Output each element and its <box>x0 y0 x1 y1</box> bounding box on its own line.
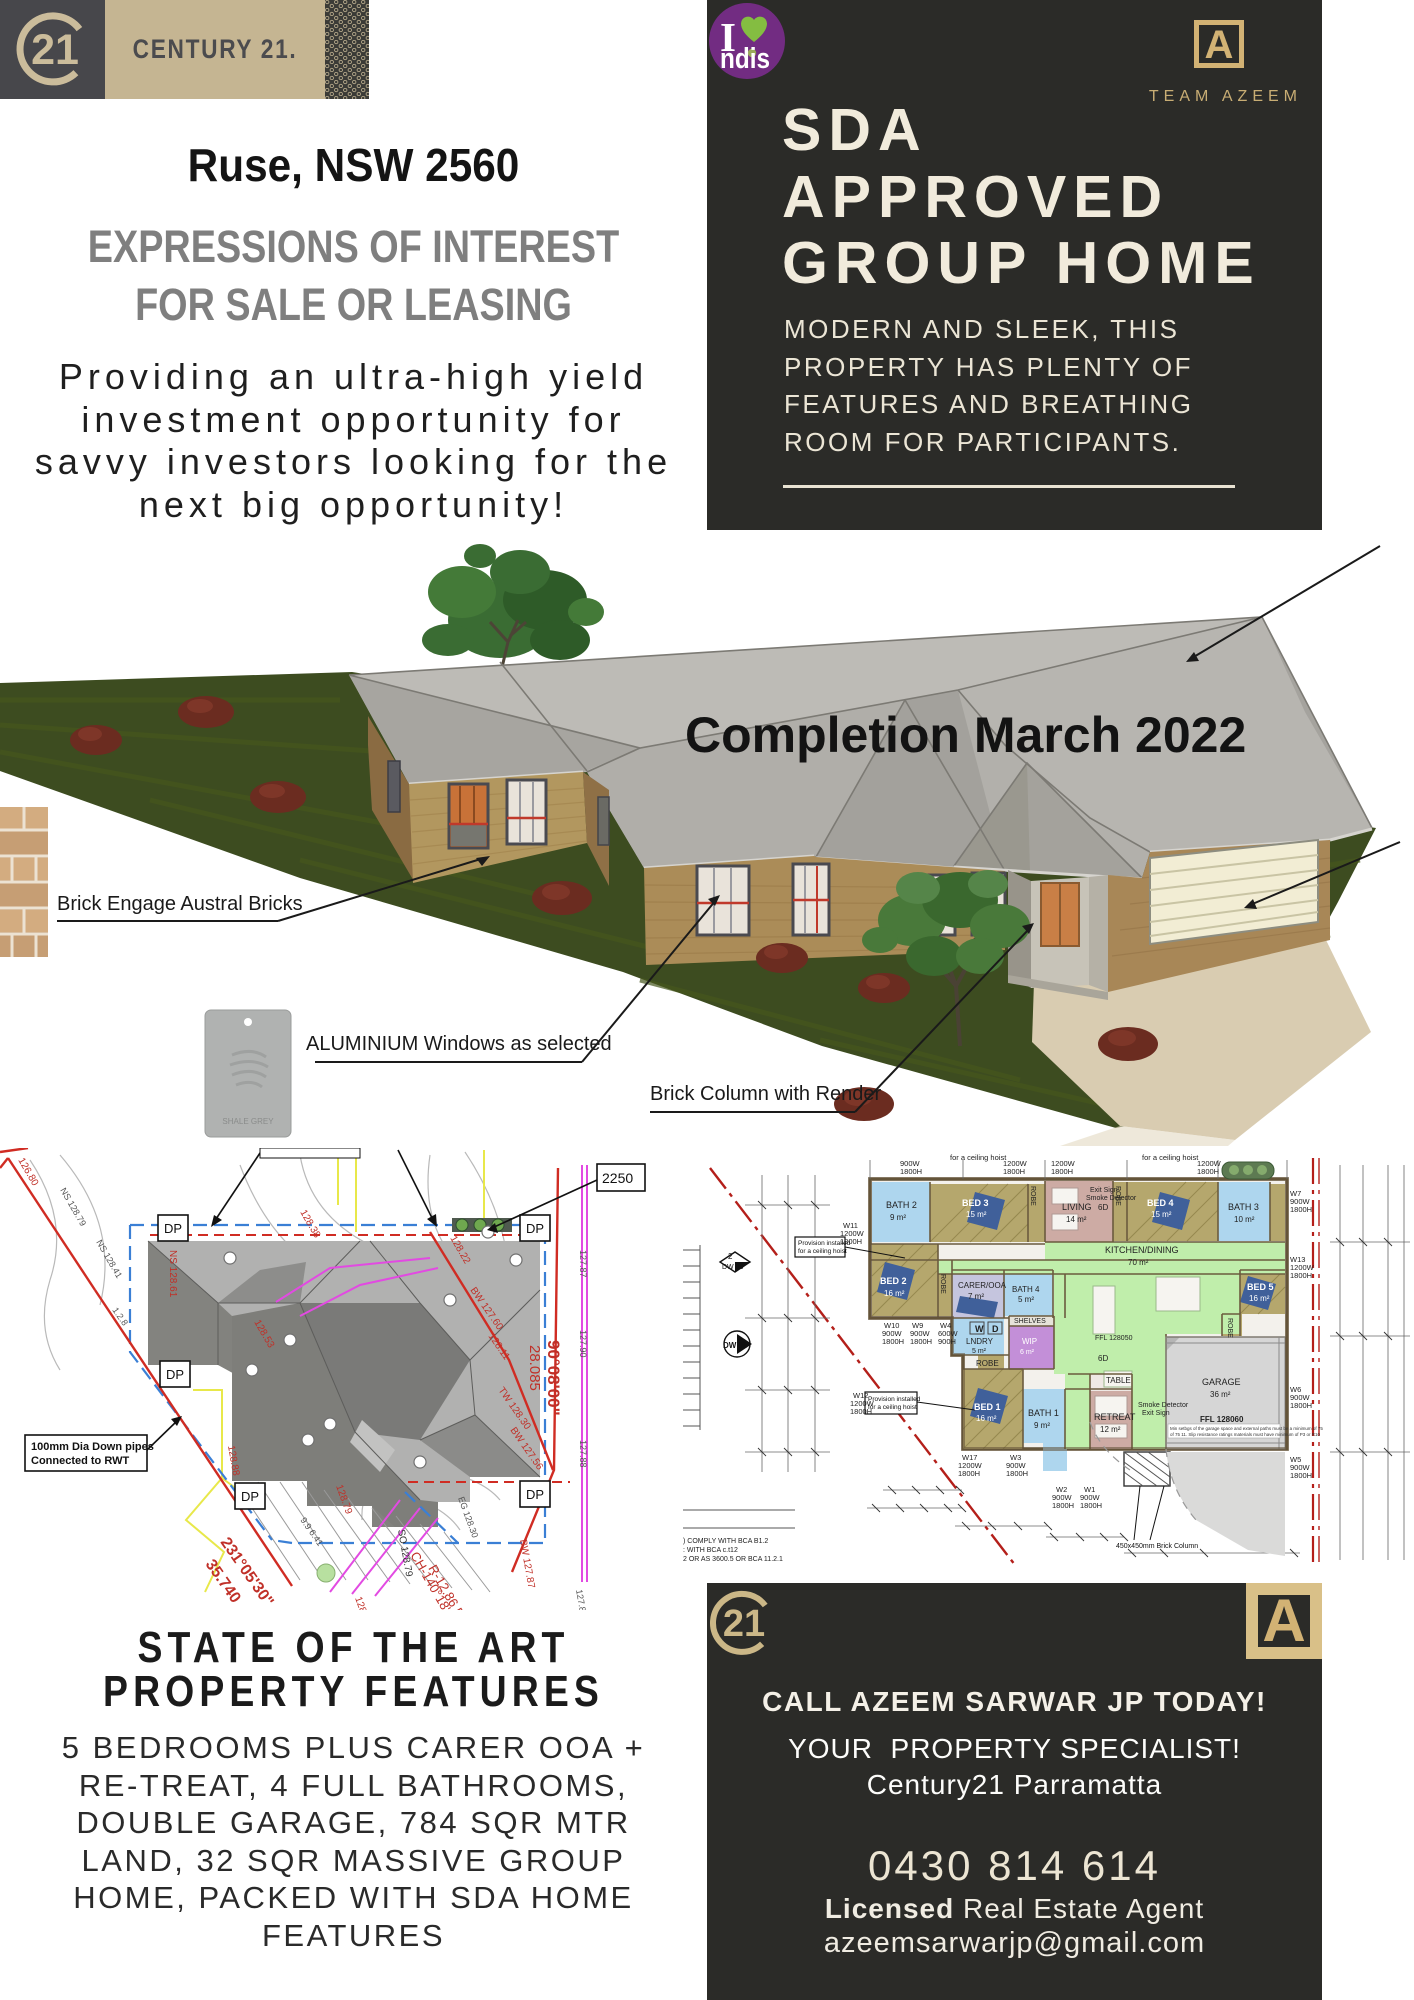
svg-text:LNDRY: LNDRY <box>966 1337 994 1346</box>
svg-text:W: W <box>975 1324 984 1334</box>
svg-text:Connected to RWT: Connected to RWT <box>31 1455 129 1467</box>
svg-text:DP: DP <box>526 1221 544 1236</box>
svg-text:NS 128.41: NS 128.41 <box>94 1238 124 1280</box>
svg-text:DW 08: DW 08 <box>722 1264 744 1271</box>
svg-text:Smoke Detector: Smoke Detector <box>1138 1402 1189 1409</box>
svg-text:BATH 3: BATH 3 <box>1228 1202 1259 1212</box>
svg-text:TABLE: TABLE <box>1106 1376 1131 1385</box>
svg-text:16 m²: 16 m² <box>884 1289 905 1298</box>
svg-text:10 m²: 10 m² <box>1234 1215 1255 1224</box>
svg-text:NS 128.79: NS 128.79 <box>58 1186 88 1228</box>
svg-text:BED 3: BED 3 <box>962 1198 989 1208</box>
svg-text:100mm Dia Down pipes: 100mm Dia Down pipes <box>31 1441 154 1453</box>
svg-text:ndis: ndis <box>720 43 770 75</box>
svg-text:1800H: 1800H <box>1051 1167 1073 1176</box>
svg-text:DP: DP <box>164 1221 182 1236</box>
svg-text:FFL 128050: FFL 128050 <box>1095 1335 1133 1342</box>
svg-text:DP: DP <box>526 1487 544 1502</box>
svg-text:16 m²: 16 m² <box>1249 1294 1270 1303</box>
svg-text:7 m²: 7 m² <box>968 1292 984 1301</box>
svg-text:2: 2 <box>728 1252 733 1261</box>
svg-text:for a ceiling hoist: for a ceiling hoist <box>798 1248 847 1255</box>
svg-text:Exit Sign: Exit Sign <box>1090 1187 1118 1194</box>
svg-text:1800H: 1800H <box>1003 1167 1025 1176</box>
svg-text:1800H: 1800H <box>1290 1471 1312 1480</box>
svg-text:450x450mm Brick Column: 450x450mm Brick Column <box>1116 1543 1198 1550</box>
svg-text:BATH 4: BATH 4 <box>1012 1285 1040 1294</box>
svg-text:BED 5: BED 5 <box>1247 1282 1274 1292</box>
svg-text:DP: DP <box>166 1367 184 1382</box>
svg-text:SHALE GREY: SHALE GREY <box>222 1117 274 1126</box>
svg-text:1800H: 1800H <box>1290 1401 1312 1410</box>
svg-text:1800H: 1800H <box>1006 1469 1028 1478</box>
svg-text:FFL 128060: FFL 128060 <box>1200 1415 1244 1424</box>
svg-text:Brick Column with Render: Brick Column with Render <box>650 1083 882 1105</box>
svg-text:90°08'00": 90°08'00" <box>544 1340 563 1416</box>
svg-text:9 m²: 9 m² <box>1034 1421 1050 1430</box>
svg-text:127.87: 127.87 <box>578 1250 588 1278</box>
svg-text:21: 21 <box>31 26 79 74</box>
svg-text:1800H: 1800H <box>958 1469 980 1478</box>
svg-text:for a ceiling hoist: for a ceiling hoist <box>1142 1153 1199 1162</box>
svg-text:NS 128.61: NS 128.61 <box>167 1250 178 1298</box>
svg-text:ROBE: ROBE <box>976 1359 999 1368</box>
svg-text:1800H: 1800H <box>850 1407 872 1416</box>
svg-text:BATH 1: BATH 1 <box>1028 1408 1059 1418</box>
svg-text:15 m²: 15 m² <box>966 1210 987 1219</box>
svg-text:KITCHEN/DINING: KITCHEN/DINING <box>1105 1245 1179 1255</box>
svg-text:RETREAT: RETREAT <box>1094 1412 1136 1422</box>
svg-text:14 m²: 14 m² <box>1066 1215 1087 1224</box>
svg-text:ROBE: ROBE <box>939 1274 946 1294</box>
svg-text:SHELVES: SHELVES <box>1014 1318 1046 1325</box>
svg-text:ROBE: ROBE <box>1029 1186 1036 1206</box>
svg-text:BED 1: BED 1 <box>974 1402 1001 1412</box>
svg-text:D: D <box>992 1324 999 1334</box>
svg-text:of 75 11. Slip resistance rati: of 75 11. Slip resistance ratings materi… <box>1170 1432 1320 1437</box>
svg-text:900H: 900H <box>938 1337 956 1346</box>
svg-text:Provision installed: Provision installed <box>868 1396 921 1403</box>
svg-text:6D: 6D <box>1098 1203 1108 1212</box>
svg-text:1800H: 1800H <box>840 1237 862 1246</box>
svg-text:16 m²: 16 m² <box>976 1414 997 1423</box>
svg-text:EG 128.30: EG 128.30 <box>456 1495 480 1539</box>
svg-text:Brick Engage Austral Bricks: Brick Engage Austral Bricks <box>57 893 303 915</box>
svg-text:1800H: 1800H <box>1290 1271 1312 1280</box>
svg-text:1800H: 1800H <box>1080 1501 1102 1510</box>
svg-text:) COMPLY WITH BCA B1.2: ) COMPLY WITH BCA B1.2 <box>683 1538 768 1545</box>
svg-text:CARER/OOA: CARER/OOA <box>958 1281 1007 1290</box>
svg-text:Min setbgs of the garage space: Min setbgs of the garage space and exter… <box>1170 1426 1323 1431</box>
svg-text:6 m²: 6 m² <box>1020 1349 1035 1356</box>
svg-text:5 m²: 5 m² <box>1018 1295 1034 1304</box>
svg-text:128.43: 128.43 <box>352 1595 373 1610</box>
svg-text:: WITH BCA c.t12: : WITH BCA c.t12 <box>683 1547 738 1554</box>
svg-text:1800H: 1800H <box>1290 1205 1312 1214</box>
svg-text:1800H: 1800H <box>900 1167 922 1176</box>
svg-text:1800H: 1800H <box>882 1337 904 1346</box>
svg-text:70 m²: 70 m² <box>1128 1258 1149 1267</box>
svg-text:9 m²: 9 m² <box>890 1213 906 1222</box>
svg-text:BED 4: BED 4 <box>1147 1198 1174 1208</box>
svg-text:1800H: 1800H <box>1197 1167 1219 1176</box>
svg-text:Smoke Detector: Smoke Detector <box>1086 1195 1137 1202</box>
svg-text:127.86: 127.86 <box>574 1589 589 1610</box>
svg-text:Exit Sign: Exit Sign <box>1142 1410 1170 1417</box>
svg-text:GARAGE: GARAGE <box>1202 1377 1241 1387</box>
svg-text:for a ceiling hoist: for a ceiling hoist <box>950 1153 1007 1162</box>
svg-text:DW 08: DW 08 <box>723 1341 748 1350</box>
svg-text:DP: DP <box>241 1489 259 1504</box>
svg-text:36 m²: 36 m² <box>1210 1390 1231 1399</box>
svg-text:126.80: 126.80 <box>15 1156 40 1188</box>
svg-text:ROBE: ROBE <box>1226 1318 1233 1338</box>
svg-text:Completion March 2022: Completion March 2022 <box>685 707 1246 763</box>
svg-text:BW 127.87: BW 127.87 <box>517 1539 536 1590</box>
svg-text:LIVING: LIVING <box>1062 1202 1092 1212</box>
svg-text:BATH 2: BATH 2 <box>886 1200 917 1210</box>
svg-text:21: 21 <box>723 1603 765 1645</box>
svg-text:2250: 2250 <box>602 1170 633 1186</box>
svg-text:28.085: 28.085 <box>526 1345 543 1391</box>
svg-text:127.88: 127.88 <box>578 1440 588 1468</box>
svg-text:6D: 6D <box>1098 1354 1108 1363</box>
svg-text:ALUMINIUM Windows as selected: ALUMINIUM Windows as selected <box>306 1033 612 1055</box>
svg-text:12 m²: 12 m² <box>1100 1425 1121 1434</box>
svg-text:1800H: 1800H <box>1052 1501 1074 1510</box>
svg-text:1800H: 1800H <box>910 1337 932 1346</box>
svg-text:127.90: 127.90 <box>578 1330 588 1358</box>
svg-text:WIP: WIP <box>1022 1337 1037 1346</box>
svg-text:15 m²: 15 m² <box>1151 1210 1172 1219</box>
svg-text:2 OR AS 3600.5 OR BCA 11.2.1: 2 OR AS 3600.5 OR BCA 11.2.1 <box>683 1556 783 1563</box>
svg-text:BED 2: BED 2 <box>880 1276 907 1286</box>
svg-text:5 m²: 5 m² <box>972 1348 987 1355</box>
svg-text:for a ceiling hoist: for a ceiling hoist <box>868 1404 917 1411</box>
